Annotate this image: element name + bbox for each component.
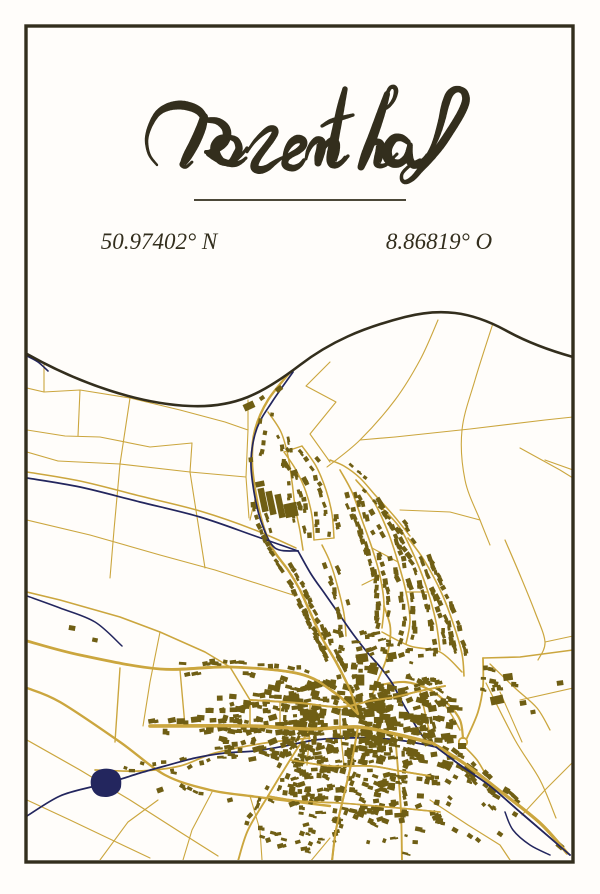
svg-text:50.97402° N: 50.97402° N [101,229,219,254]
svg-text:8.86819° O: 8.86819° O [386,229,493,254]
